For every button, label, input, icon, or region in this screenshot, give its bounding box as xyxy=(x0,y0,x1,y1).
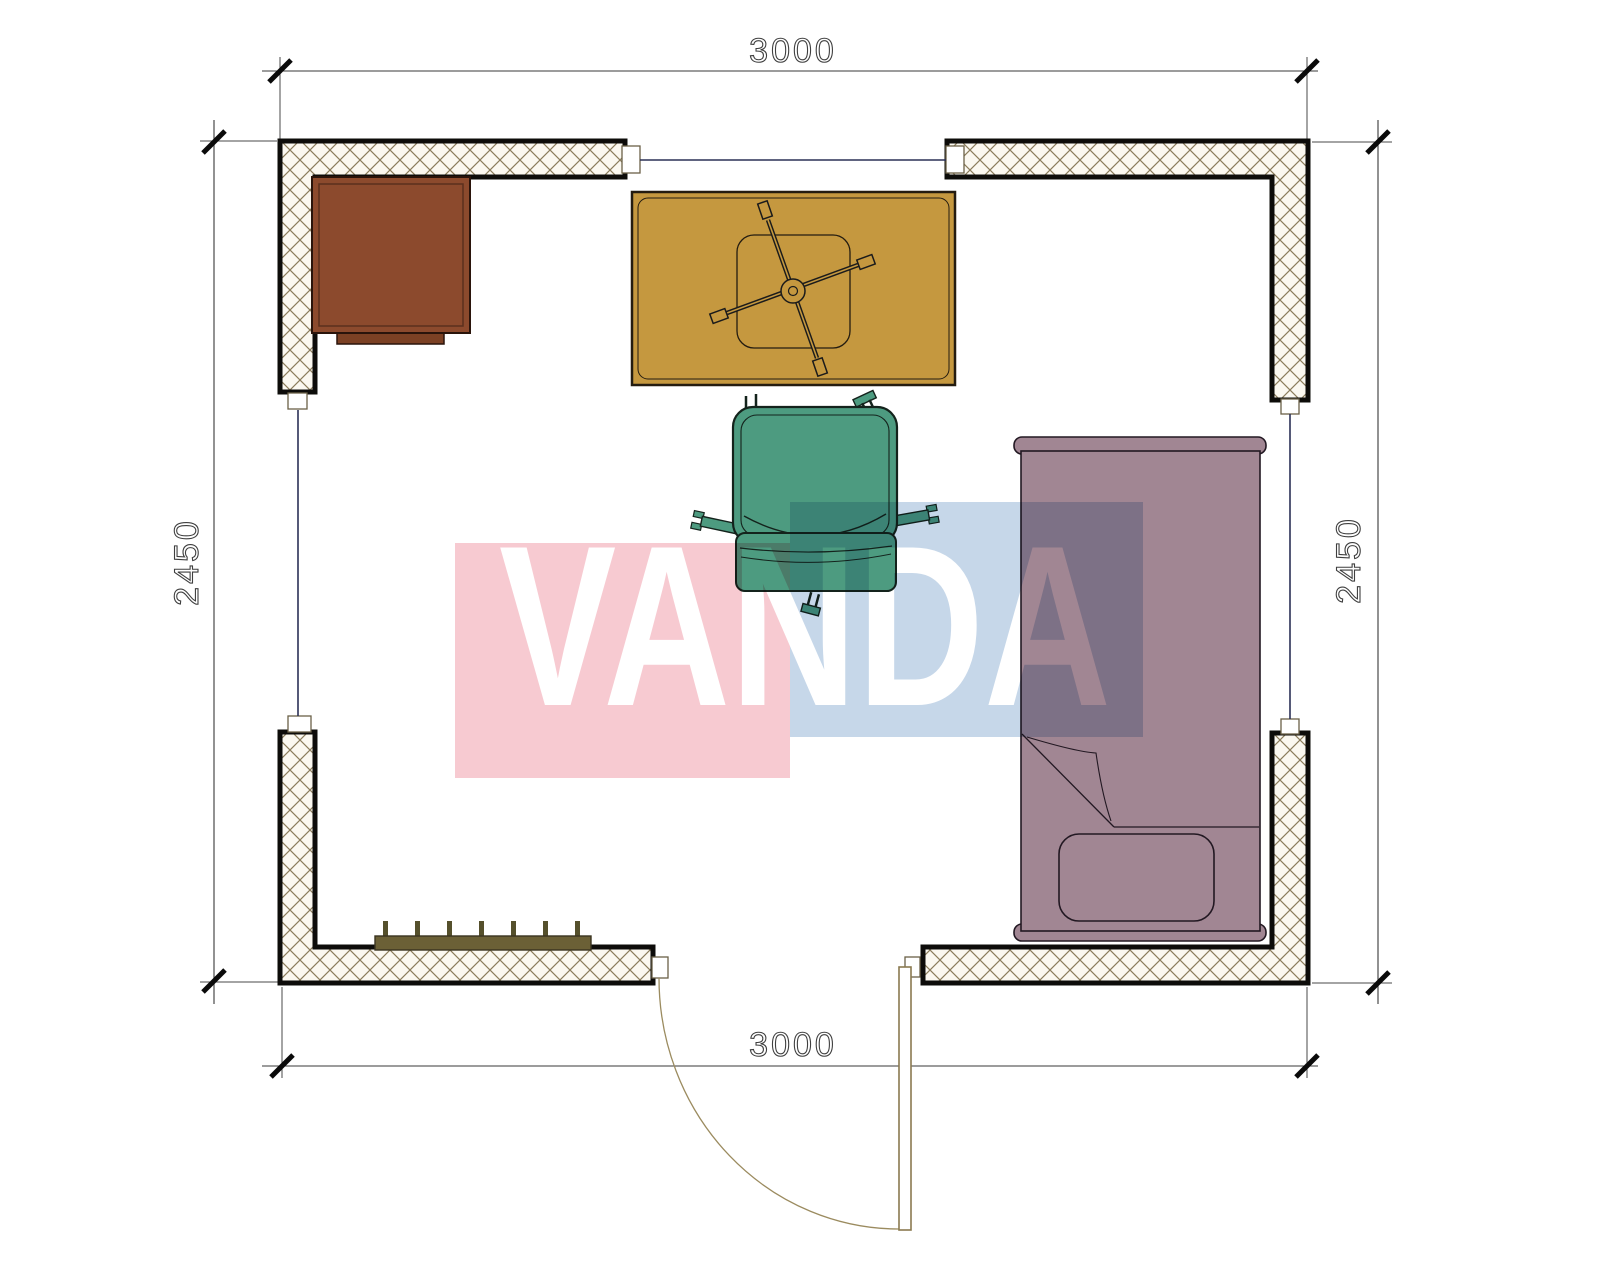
watermark-pink-block xyxy=(455,543,790,778)
watermark-blue-block xyxy=(790,502,1143,737)
watermark: VANDA xyxy=(0,0,1600,1280)
floor-plan-canvas: 3000 3000 2450 2450 xyxy=(0,0,1600,1280)
